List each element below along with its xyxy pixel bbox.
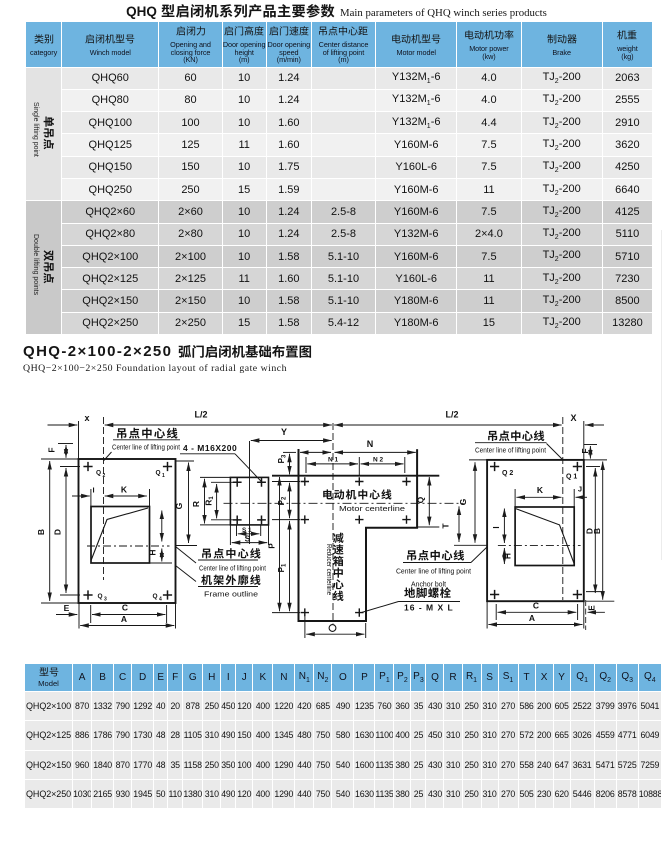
- svg-text:Q: Q: [416, 496, 426, 503]
- svg-text:Q: Q: [97, 593, 102, 600]
- svg-text:3: 3: [104, 597, 107, 603]
- svg-text:Q 1: Q 1: [566, 474, 577, 481]
- svg-text:A: A: [121, 614, 127, 624]
- svg-text:K: K: [537, 485, 544, 495]
- svg-text:Center line of lifting point: Center line of lifting point: [475, 448, 546, 455]
- svg-text:Center line of lifting point: Center line of lifting point: [112, 445, 180, 452]
- svg-text:Y: Y: [281, 427, 287, 437]
- svg-text:H: H: [148, 549, 158, 555]
- svg-text:I: I: [92, 486, 94, 495]
- svg-text:L/2: L/2: [194, 410, 207, 420]
- svg-text:F: F: [580, 448, 590, 453]
- svg-text:J: J: [578, 485, 582, 494]
- svg-text:D: D: [53, 529, 63, 535]
- svg-text:1: 1: [162, 473, 165, 479]
- svg-text:S: S: [245, 534, 251, 544]
- svg-text:Q: Q: [96, 470, 101, 477]
- svg-text:2: 2: [103, 473, 106, 479]
- svg-text:4: 4: [159, 597, 162, 603]
- svg-text:R: R: [191, 501, 201, 507]
- svg-text:Q 2: Q 2: [502, 470, 513, 477]
- svg-text:I: I: [492, 526, 501, 528]
- svg-text:L/2: L/2: [445, 410, 458, 420]
- svg-text:X: X: [570, 413, 576, 423]
- svg-text:K: K: [121, 485, 128, 495]
- svg-text:G: G: [458, 498, 468, 505]
- svg-text:4 - M16X200: 4 - M16X200: [183, 443, 237, 453]
- svg-text:Center line of lifting point: Center line of lifting point: [396, 569, 471, 576]
- svg-text:Q: Q: [152, 593, 157, 600]
- svg-text:G: G: [174, 502, 184, 509]
- svg-text:C: C: [122, 603, 128, 613]
- svg-text:Motor centerline: Motor centerline: [339, 506, 405, 513]
- svg-text:B: B: [592, 528, 602, 534]
- svg-text:T: T: [441, 523, 451, 529]
- svg-text:Q: Q: [155, 470, 160, 477]
- svg-text:P3: P3: [277, 454, 288, 463]
- svg-text:B: B: [36, 529, 46, 535]
- svg-text:Anchor bolt: Anchor bolt: [411, 582, 446, 589]
- svg-text:A: A: [529, 613, 535, 623]
- svg-text:x: x: [84, 413, 89, 423]
- svg-text:Frame outline: Frame outline: [204, 592, 258, 599]
- svg-text:C: C: [533, 601, 539, 611]
- svg-text:H: H: [503, 553, 513, 559]
- svg-text:N: N: [367, 439, 374, 449]
- svg-text:F: F: [47, 447, 57, 452]
- svg-text:P1: P1: [277, 563, 288, 572]
- svg-text:R1: R1: [204, 496, 216, 506]
- svg-text:Center line of lifting point: Center line of lifting point: [199, 566, 266, 573]
- svg-text:E: E: [64, 603, 70, 613]
- svg-text:Reducer centerline: Reducer centerline: [325, 544, 332, 595]
- svg-text:N 2: N 2: [373, 457, 384, 464]
- svg-text:16 - M X L: 16 - M X L: [404, 603, 454, 613]
- svg-text:P2: P2: [277, 496, 288, 505]
- svg-text:E: E: [588, 605, 597, 611]
- svg-text:N 1: N 1: [328, 457, 339, 464]
- svg-text:P: P: [268, 543, 277, 549]
